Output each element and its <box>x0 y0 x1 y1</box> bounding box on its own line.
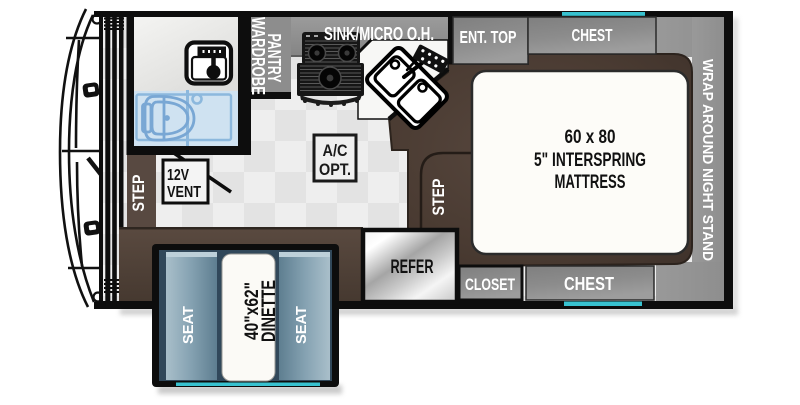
svg-text:MATTRESS: MATTRESS <box>555 172 626 193</box>
svg-text:SEAT: SEAT <box>294 306 310 344</box>
svg-text:PANTRY: PANTRY <box>264 34 285 83</box>
svg-text:ENT. TOP: ENT. TOP <box>460 27 517 47</box>
svg-text:STEP: STEP <box>430 179 448 216</box>
svg-text:A/C: A/C <box>323 141 348 160</box>
svg-text:SINK/MICRO O.H.: SINK/MICRO O.H. <box>324 24 434 44</box>
svg-text:REFER: REFER <box>391 256 434 278</box>
svg-text:STEP: STEP <box>130 175 148 212</box>
svg-text:12V: 12V <box>167 167 189 184</box>
svg-text:WRAP AROUND NIGHT STAND: WRAP AROUND NIGHT STAND <box>699 59 715 261</box>
svg-text:OPT.: OPT. <box>319 160 351 179</box>
svg-text:CHEST: CHEST <box>572 25 613 45</box>
svg-text:5" INTERSPRING: 5" INTERSPRING <box>534 150 646 171</box>
svg-text:SEAT: SEAT <box>181 306 197 344</box>
svg-text:CLOSET: CLOSET <box>465 275 515 294</box>
svg-text:CHEST: CHEST <box>564 274 614 294</box>
svg-text:VENT: VENT <box>167 184 201 201</box>
svg-text:DINETTE: DINETTE <box>259 280 280 342</box>
svg-text:60 x 80: 60 x 80 <box>565 127 616 148</box>
